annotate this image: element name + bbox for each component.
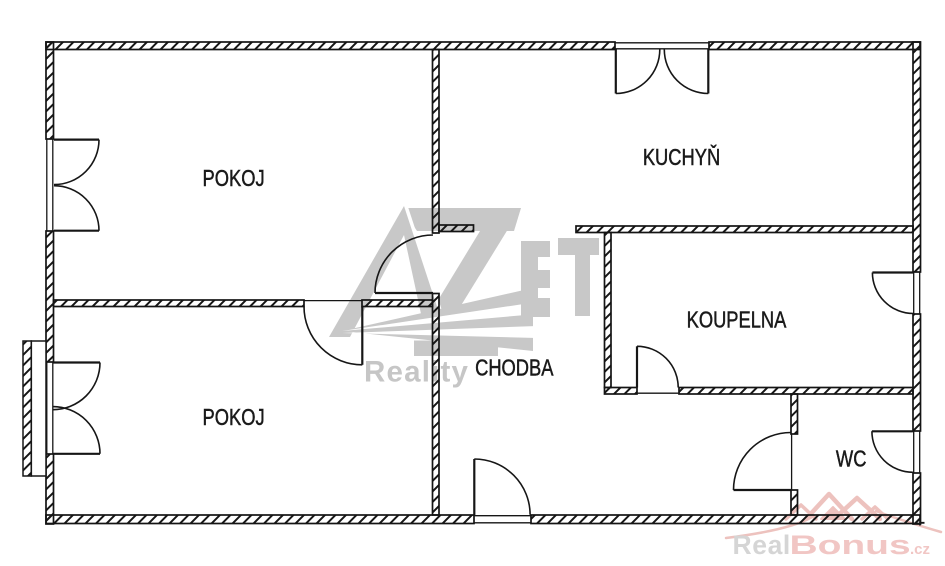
svg-text:Real: Real bbox=[733, 530, 791, 560]
svg-text:Reality: Reality bbox=[364, 356, 469, 389]
svg-text:KOUPELNA: KOUPELNA bbox=[687, 307, 787, 333]
svg-text:WC: WC bbox=[836, 446, 867, 472]
svg-text:.cz: .cz bbox=[910, 541, 930, 558]
svg-text:POKOJ: POKOJ bbox=[203, 166, 265, 192]
svg-text:POKOJ: POKOJ bbox=[203, 405, 265, 431]
svg-text:Bonus: Bonus bbox=[789, 531, 910, 560]
svg-text:CHODBA: CHODBA bbox=[475, 355, 553, 381]
svg-text:KUCHYŇ: KUCHYŇ bbox=[643, 145, 720, 171]
